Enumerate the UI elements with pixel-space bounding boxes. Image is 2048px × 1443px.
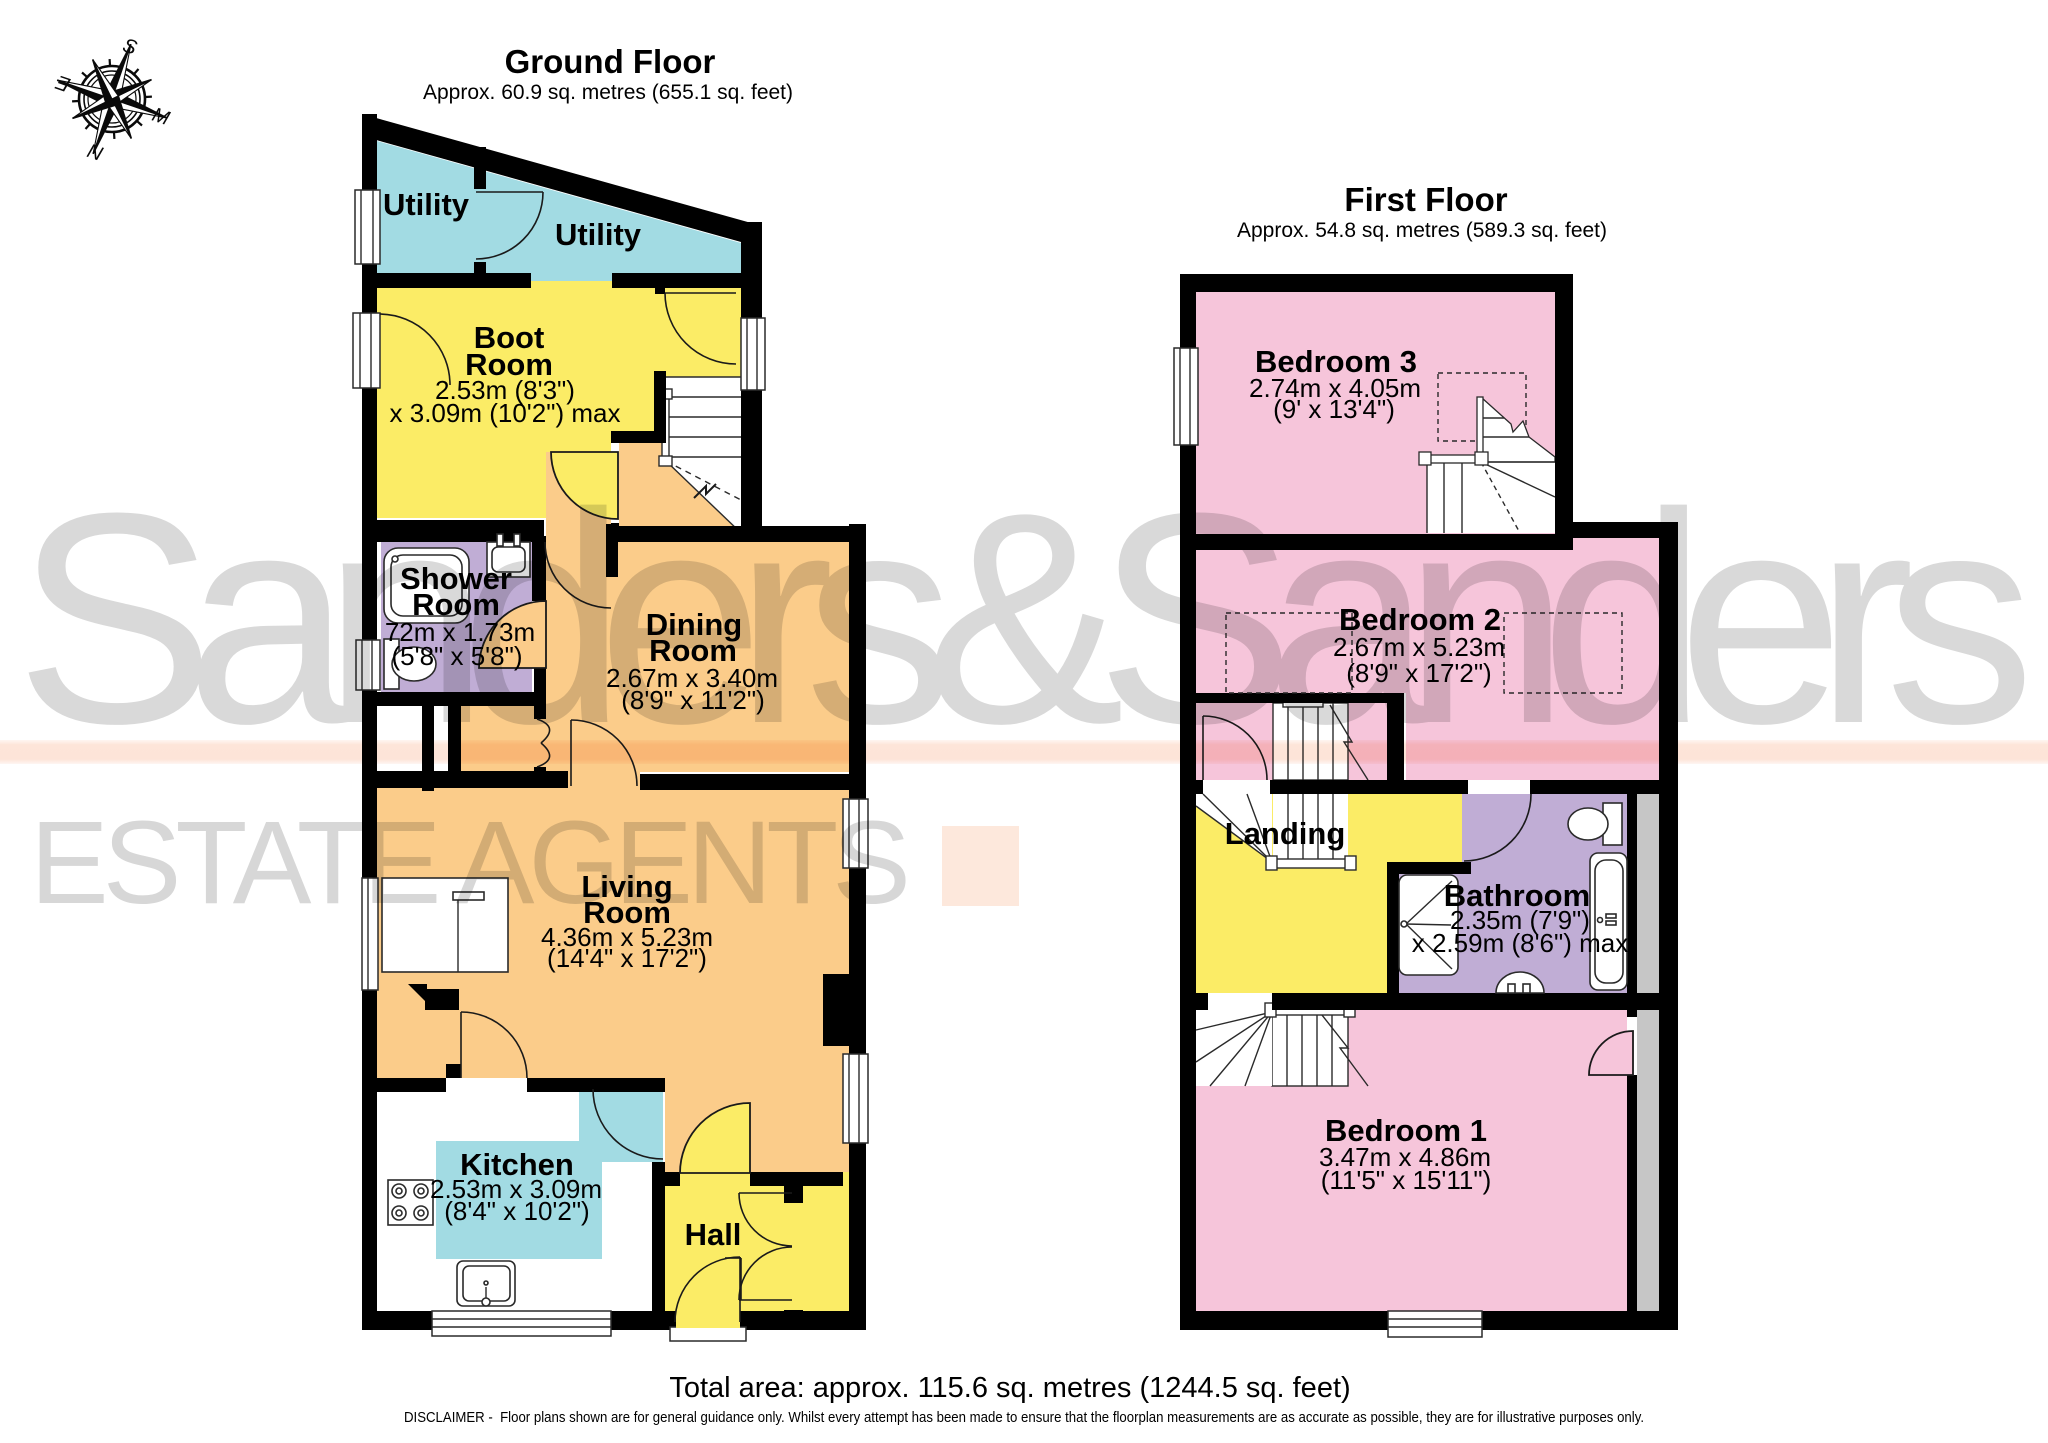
svg-text:Utility: Utility <box>555 217 642 252</box>
svg-text:(11'5" x 15'11"): (11'5" x 15'11") <box>1321 1165 1492 1195</box>
svg-text:Approx. 54.8 sq. metres (589.3: Approx. 54.8 sq. metres (589.3 sq. feet) <box>1237 219 1607 242</box>
svg-text:(9' x 13'4"): (9' x 13'4") <box>1273 394 1395 424</box>
svg-text:Hall: Hall <box>685 1217 742 1252</box>
svg-text:Sanders&Sanders: Sanders&Sanders <box>15 450 2035 786</box>
svg-text:Ground Floor: Ground Floor <box>505 43 716 80</box>
svg-text:(8'4" x 10'2"): (8'4" x 10'2") <box>444 1196 589 1226</box>
svg-text:ESTATE AGENTS: ESTATE AGENTS <box>30 797 911 929</box>
svg-text:Approx. 60.9 sq. metres (655.1: Approx. 60.9 sq. metres (655.1 sq. feet) <box>423 81 793 104</box>
svg-text:x 2.59m (8'6") max: x 2.59m (8'6") max <box>1412 928 1628 958</box>
svg-text:x 3.09m (10'2") max: x 3.09m (10'2") max <box>390 398 621 428</box>
svg-text:Utility: Utility <box>383 187 470 222</box>
svg-text:Landing: Landing <box>1225 816 1346 851</box>
svg-text:First Floor: First Floor <box>1344 181 1507 218</box>
svg-text:(14'4" x 17'2"): (14'4" x 17'2") <box>547 943 707 973</box>
svg-text:DISCLAIMER - Floor plans show: DISCLAIMER - Floor plans shown are for g… <box>404 1410 1644 1426</box>
svg-text:Total area: approx. 115.6 sq.: Total area: approx. 115.6 sq. metres (12… <box>669 1372 1350 1404</box>
